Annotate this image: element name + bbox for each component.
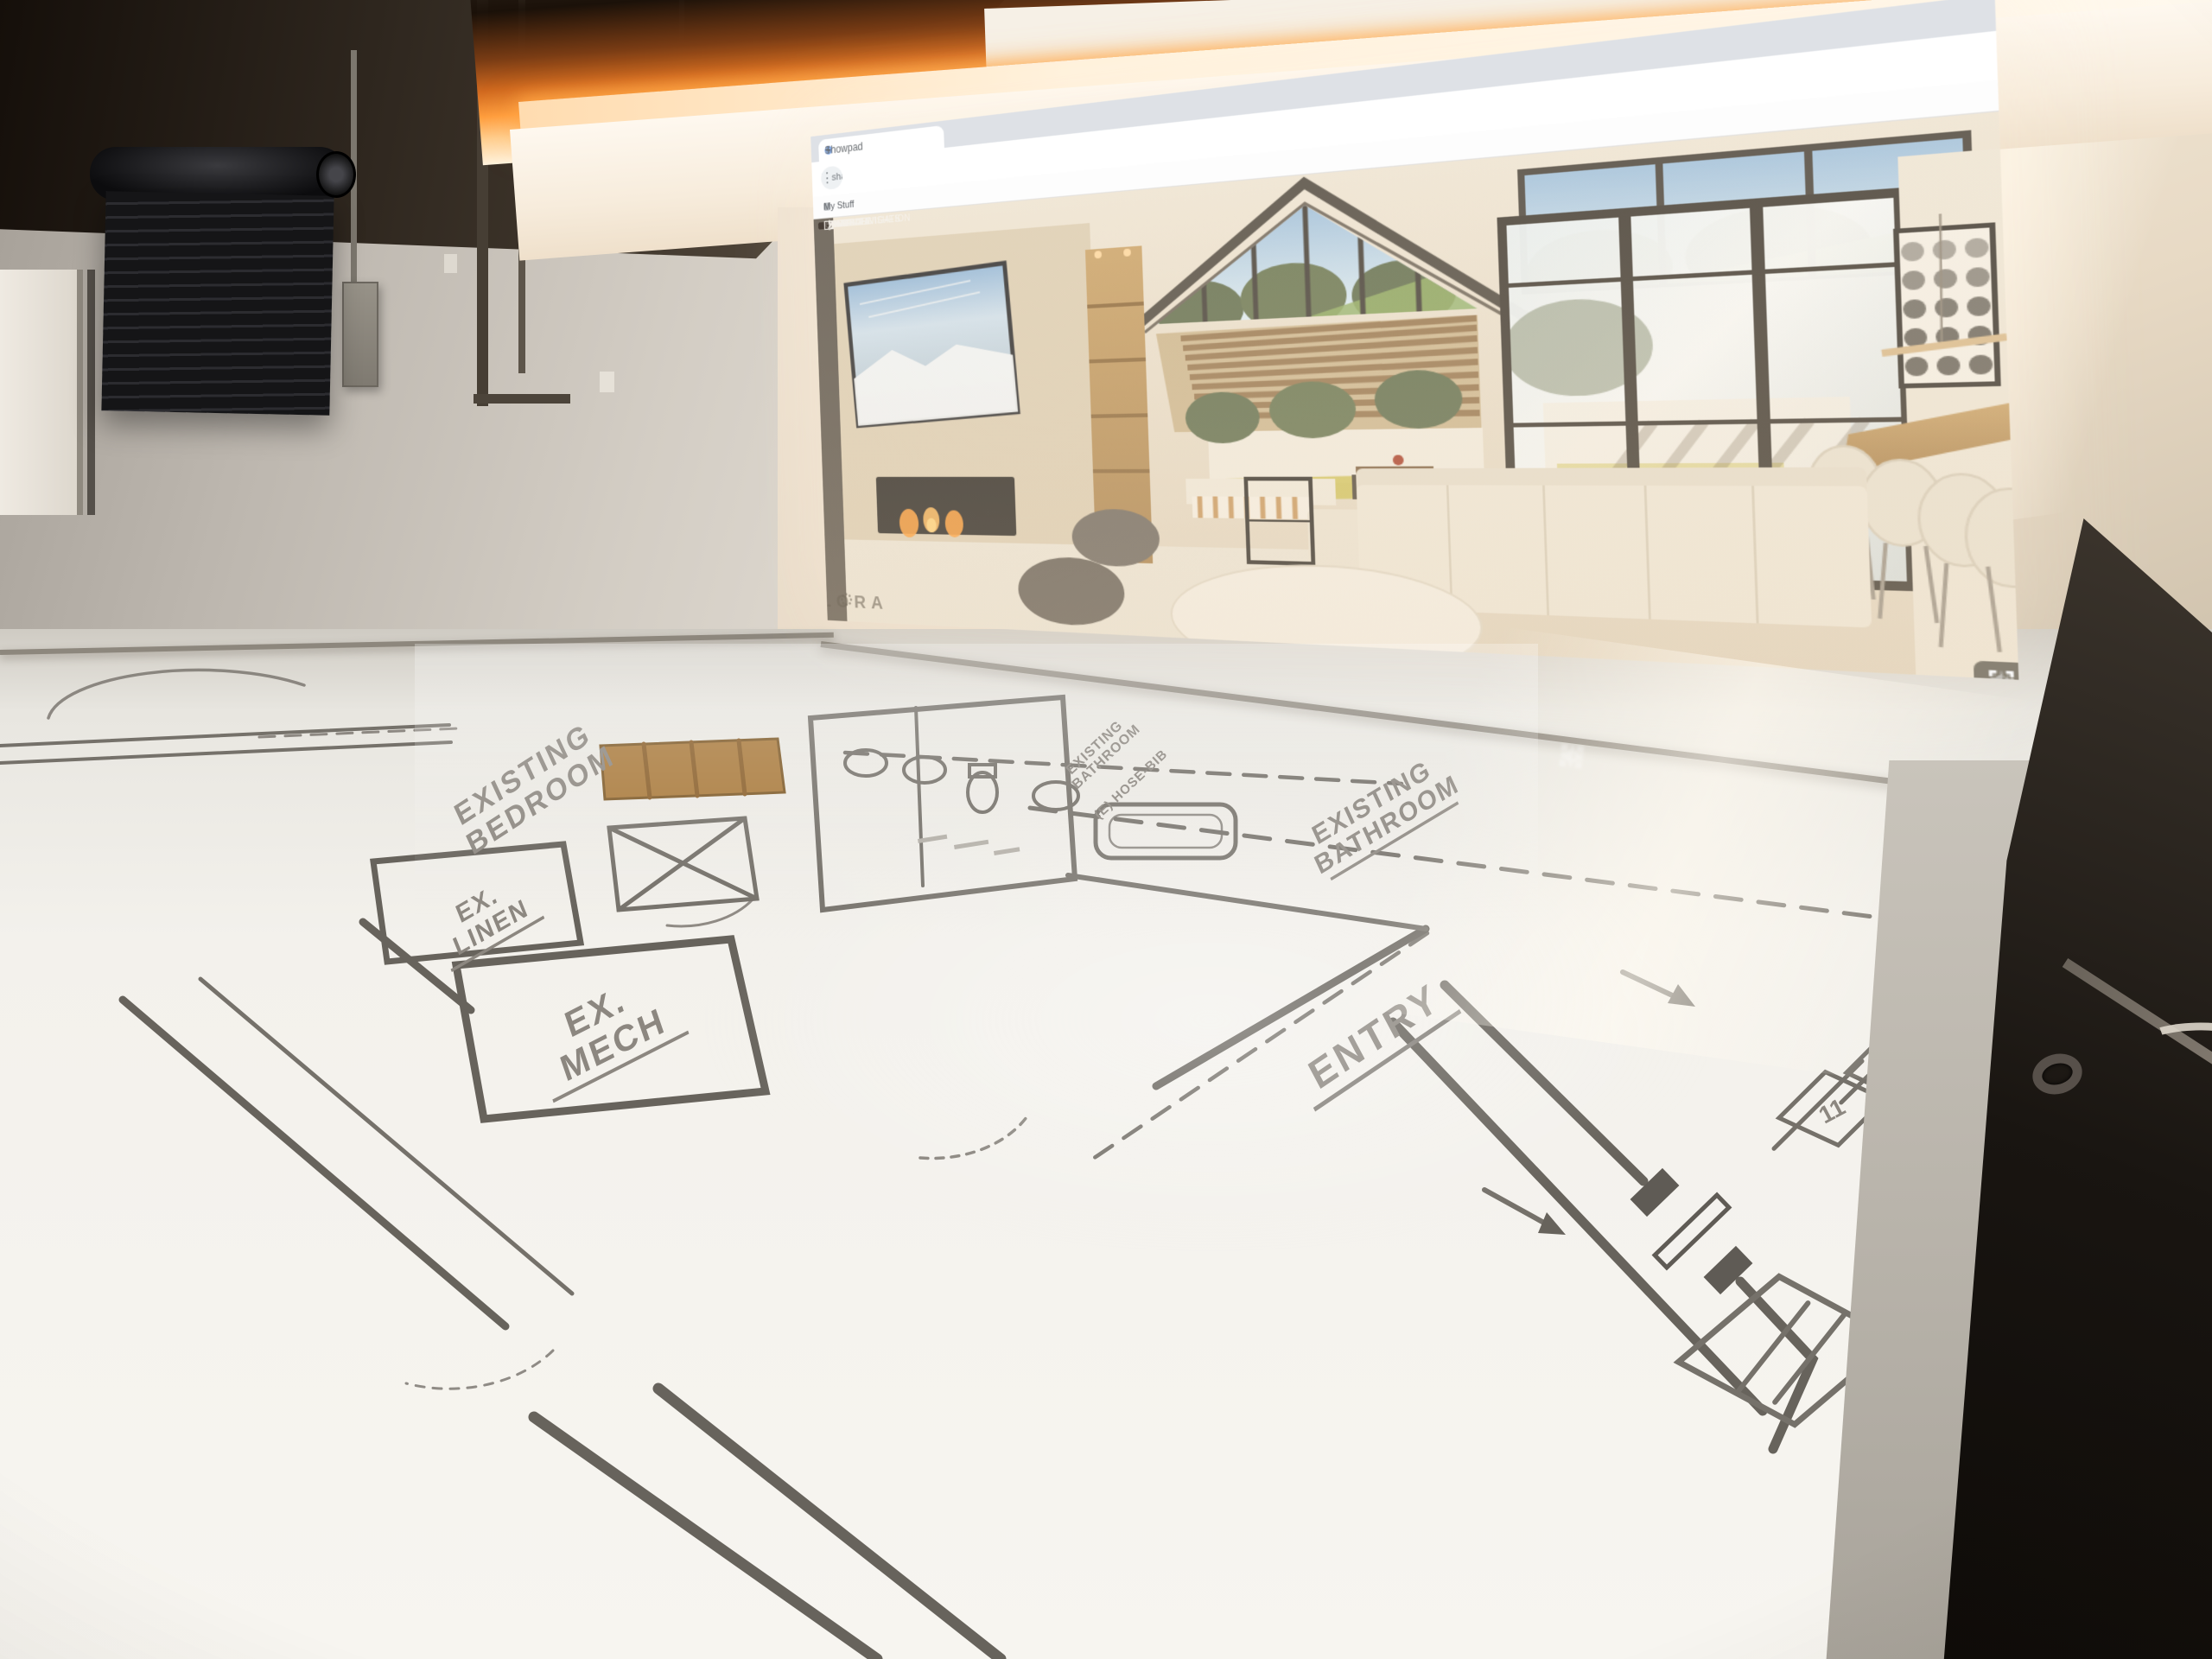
- menu-icon[interactable]: ⋮: [821, 169, 834, 188]
- conduit-elbow: [474, 394, 570, 404]
- electrical-panel: [342, 282, 378, 387]
- floor-label-ex-mech: EX. MECH: [543, 964, 671, 1090]
- bookmark-item[interactable]: My Stuff: [823, 199, 855, 212]
- fullscreen-icon: [1555, 741, 1587, 771]
- roll-end-cap: [316, 151, 356, 198]
- wall-outlet: [600, 372, 614, 392]
- floor-label-existing-bedroom: EXISTING BEDROOM: [448, 710, 620, 862]
- logout-button[interactable]: [818, 222, 829, 230]
- logout-icon: [823, 219, 833, 231]
- studio-photo: 11 12 EXISTING BEDROOM: [0, 0, 2212, 1659]
- wall-switch: [444, 254, 457, 273]
- new-tab-button[interactable]: +: [824, 138, 832, 161]
- open-door: [0, 270, 83, 515]
- black-roll-up-screen: [101, 191, 334, 415]
- doorway-shadow: [87, 270, 95, 515]
